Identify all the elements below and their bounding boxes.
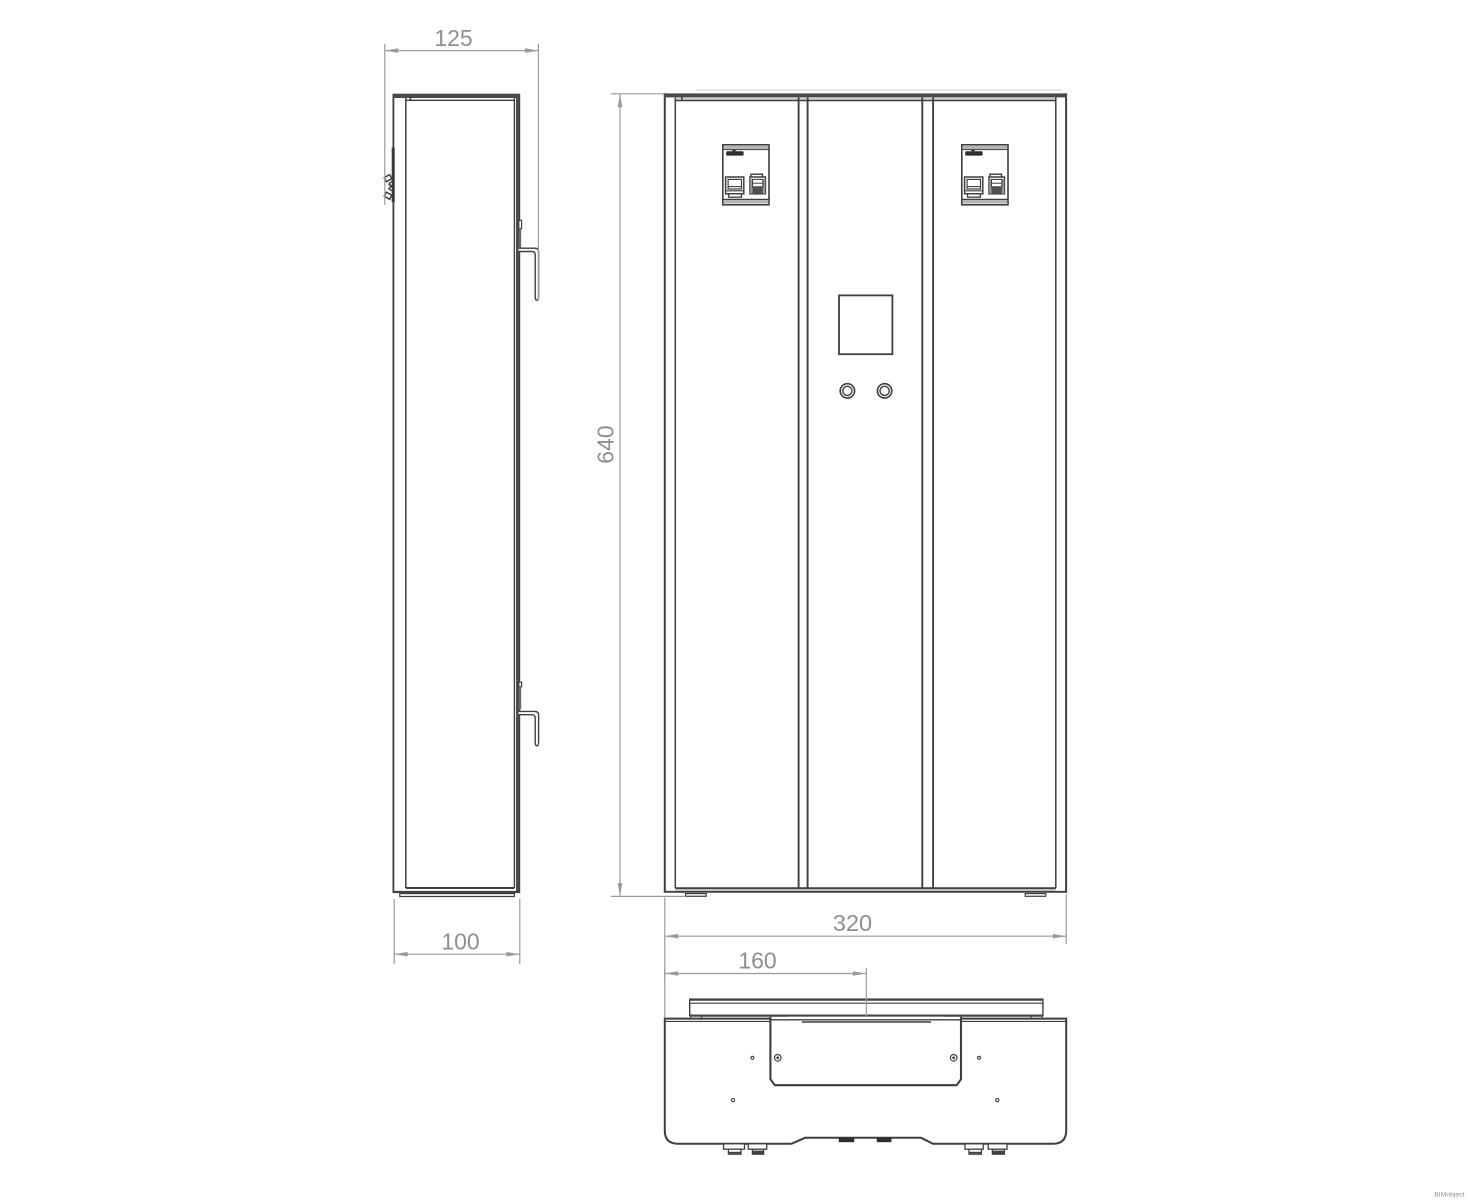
svg-text:100: 100 [441,929,479,955]
svg-text:640: 640 [593,425,619,463]
svg-text:160: 160 [738,948,776,974]
svg-text:BIMobject: BIMobject [1434,1192,1464,1199]
svg-text:125: 125 [434,25,472,51]
svg-text:320: 320 [833,910,872,936]
